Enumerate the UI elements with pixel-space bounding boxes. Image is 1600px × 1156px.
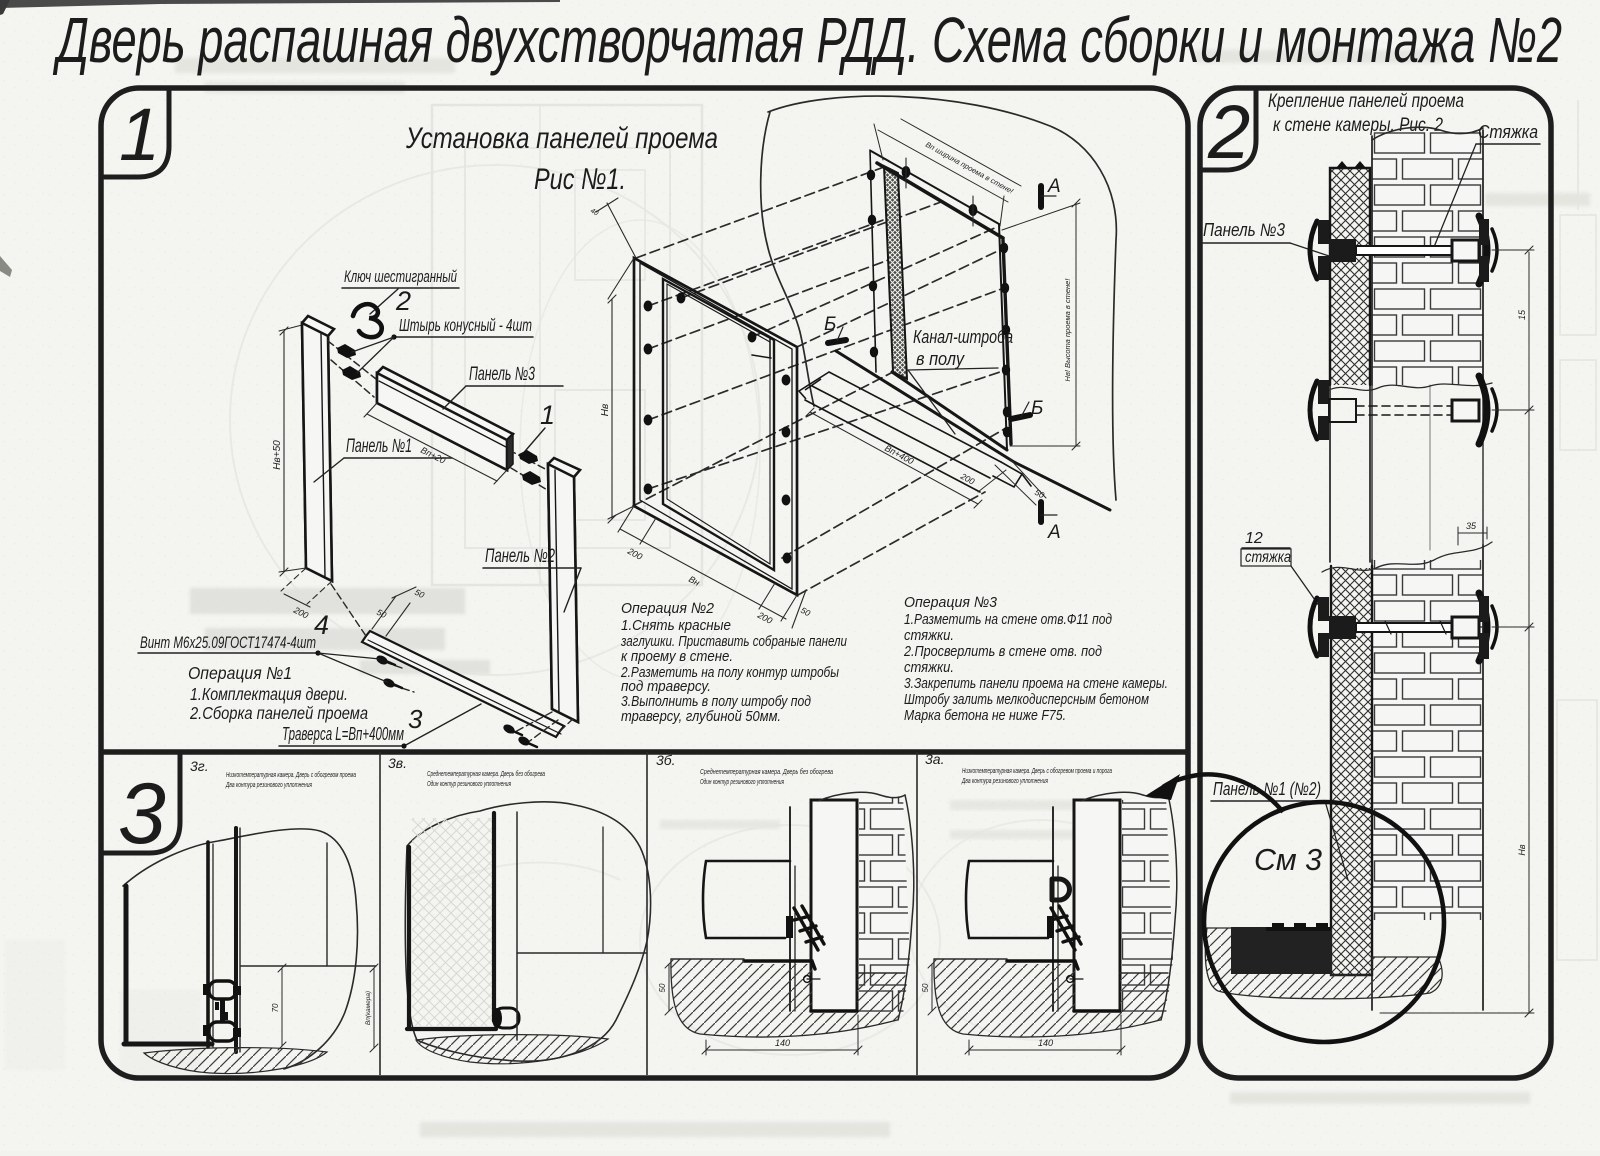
svg-text:1.Разметить на стене отв.Ф11 п: 1.Разметить на стене отв.Ф11 под (904, 611, 1112, 628)
svg-text:Траверса L=Вп+400мм: Траверса L=Вп+400мм (282, 724, 404, 744)
svg-text:Панель №2: Панель №2 (485, 546, 555, 567)
svg-text:Два контура резинового уплотне: Два контура резинового уплотнения (225, 780, 312, 789)
svg-text:Панель №1: Панель №1 (346, 436, 412, 457)
svg-text:Винт М6х25.09ГОСТ17474-4шт: Винт М6х25.09ГОСТ17474-4шт (140, 633, 316, 652)
svg-text:1: 1 (119, 93, 160, 176)
svg-text:15: 15 (1517, 309, 1527, 320)
svg-text:Нв! Высота проема в стене!: Нв! Высота проема в стене! (1063, 278, 1072, 382)
svg-text:Стяжка: Стяжка (1478, 122, 1538, 142)
svg-text:Б: Б (824, 314, 836, 335)
svg-text:Панель №3: Панель №3 (469, 364, 535, 385)
svg-text:12: 12 (1245, 530, 1263, 547)
svg-text:Среднетемпературная камера. Дв: Среднетемпературная камера. Дверь без об… (427, 769, 545, 778)
svg-text:3.Закрепить панели проема на с: 3.Закрепить панели проема на стене камер… (904, 675, 1168, 692)
svg-text:Рис №1.: Рис №1. (534, 163, 626, 196)
svg-text:3в.: 3в. (388, 755, 407, 771)
svg-text:Дверь распашная двухстворчатая: Дверь распашная двухстворчатая РДД. Схем… (53, 4, 1562, 76)
svg-text:1.Снять красные: 1.Снять красные (621, 617, 731, 634)
svg-text:3б.: 3б. (656, 752, 676, 768)
svg-text:Один контур резинового уплотне: Один контур резинового уплотнения (427, 779, 511, 788)
svg-text:стяжки.: стяжки. (904, 659, 954, 676)
svg-text:Крепление панелей проема: Крепление панелей проема (1268, 91, 1464, 112)
svg-text:См 3: См 3 (1254, 842, 1322, 877)
svg-text:Канал-штроба: Канал-штроба (913, 327, 1013, 347)
svg-text:Марка бетона не ниже F75.: Марка бетона не ниже F75. (904, 707, 1066, 724)
svg-text:Установка панелей проема: Установка панелей проема (405, 122, 718, 155)
svg-text:Ключ шестигранный: Ключ шестигранный (344, 267, 457, 286)
svg-text:Штробу залить мелкодисперсным: Штробу залить мелкодисперсным бетоном (904, 691, 1149, 708)
svg-text:4: 4 (314, 610, 329, 640)
svg-text:А: А (1047, 176, 1061, 197)
svg-text:к проему в стене.: к проему в стене. (621, 648, 733, 665)
svg-text:Вп(камера): Вп(камера) (365, 991, 372, 1025)
svg-text:140: 140 (1038, 1038, 1053, 1048)
svg-text:Среднетемпературная камера. Дв: Среднетемпературная камера. Дверь без об… (700, 767, 833, 776)
svg-text:3: 3 (408, 704, 423, 734)
svg-text:Один контур резинового уплотне: Один контур резинового уплотнения (700, 777, 784, 786)
svg-text:Б: Б (1031, 398, 1043, 419)
svg-text:траверсу, глубиной 50мм.: траверсу, глубиной 50мм. (621, 708, 781, 725)
svg-text:2.Сборка панелей проема: 2.Сборка панелей проема (189, 703, 368, 723)
svg-text:2: 2 (395, 286, 411, 316)
svg-text:3: 3 (118, 766, 166, 862)
svg-text:2: 2 (1207, 90, 1250, 175)
svg-text:Низкотемпературная камера. Две: Низкотемпературная камера. Дверь с обогр… (226, 770, 356, 779)
svg-text:35: 35 (1466, 521, 1477, 531)
svg-text:Операция №2: Операция №2 (621, 600, 715, 617)
svg-text:Панель №3: Панель №3 (1203, 220, 1285, 240)
svg-text:2.Просверлить в стене отв.: 2.Просверлить в стене отв. под (903, 643, 1102, 660)
svg-text:Операция №3: Операция №3 (904, 594, 998, 611)
svg-text:Низкотемпературная камера. Две: Низкотемпературная камера. Дверь с обогр… (962, 766, 1112, 775)
svg-text:А: А (1047, 522, 1061, 543)
svg-text:Нв: Нв (1517, 844, 1527, 855)
svg-text:Штырь конусный - 4шт: Штырь конусный - 4шт (399, 315, 532, 335)
svg-text:стяжка: стяжка (1245, 549, 1291, 566)
svg-text:1: 1 (540, 400, 555, 430)
svg-text:1.Комплектация двери.: 1.Комплектация двери. (190, 684, 348, 704)
svg-text:Операция №1: Операция №1 (188, 663, 292, 683)
svg-text:Нв+50: Нв+50 (272, 440, 283, 470)
svg-text:Два контура резинового уплотне: Два контура резинового уплотнения (961, 776, 1048, 785)
svg-text:стяжки.: стяжки. (904, 627, 954, 644)
svg-text:50: 50 (921, 983, 930, 992)
svg-text:50: 50 (658, 983, 667, 992)
svg-text:3а.: 3а. (925, 751, 944, 767)
svg-text:70: 70 (271, 1003, 280, 1012)
svg-text:140: 140 (775, 1038, 790, 1048)
svg-text:3г.: 3г. (190, 758, 209, 774)
svg-text:Нв: Нв (600, 404, 611, 416)
svg-text:в полу: в полу (916, 349, 965, 369)
